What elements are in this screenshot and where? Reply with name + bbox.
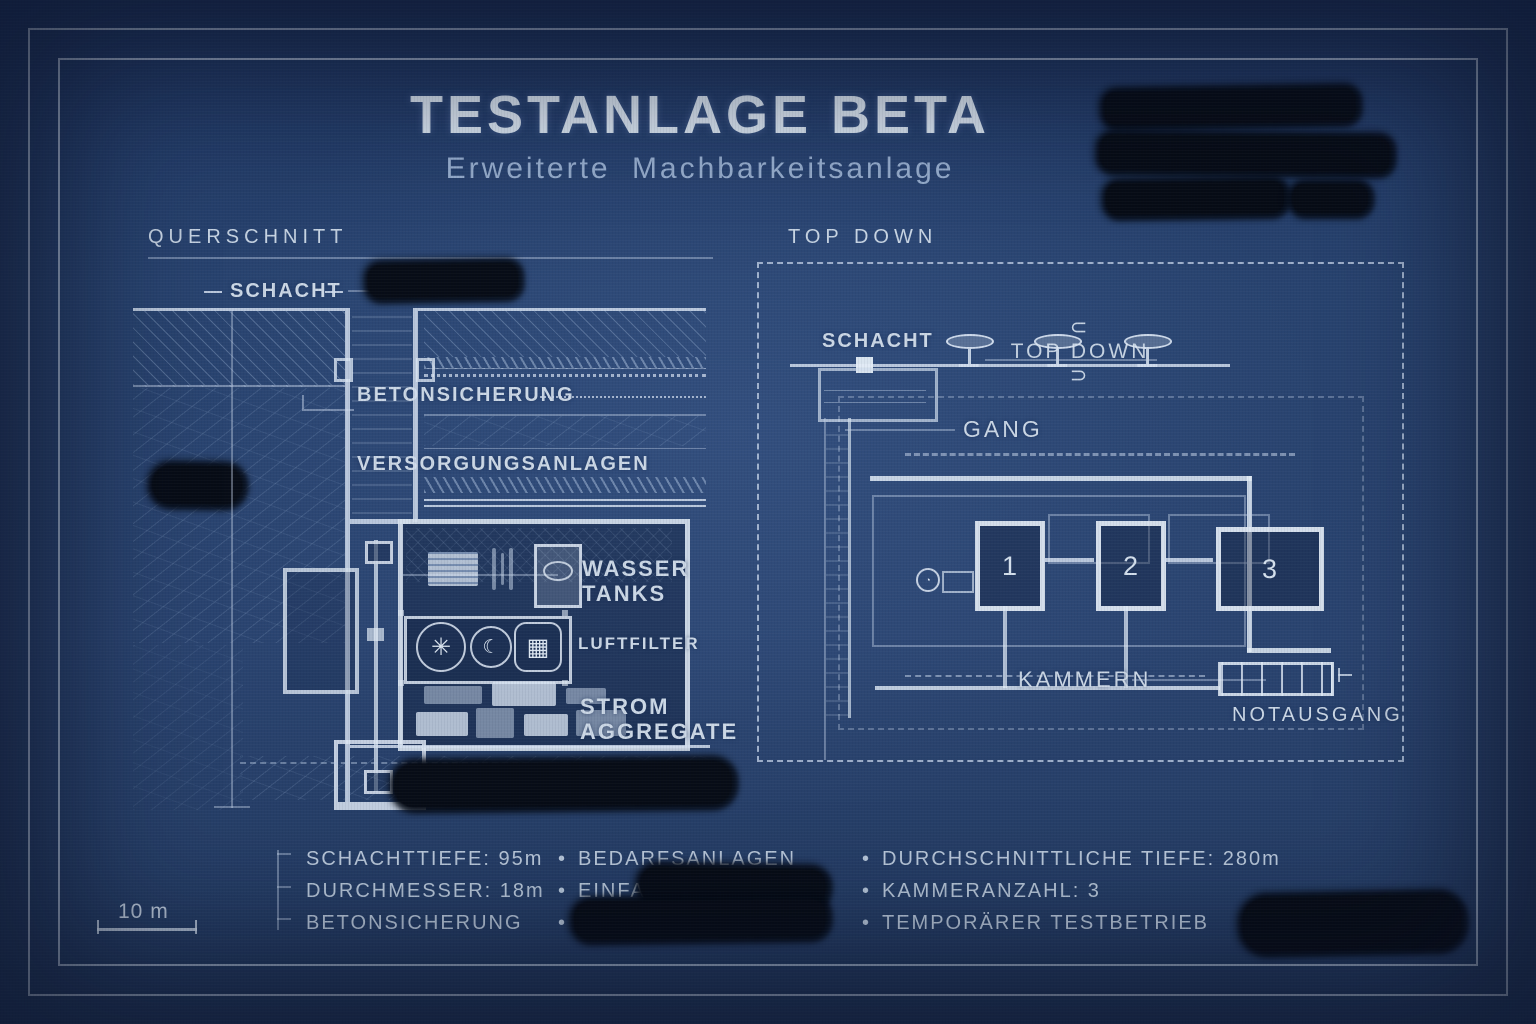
crescent-glyph: ☾ <box>482 636 499 659</box>
water-tank-icon <box>534 544 582 608</box>
betonsicherung-dotline <box>424 374 706 377</box>
chamber-1: 1 <box>975 521 1045 611</box>
redaction-mark <box>1100 134 1390 172</box>
exit-arrow-icon <box>1338 668 1340 682</box>
legend-item: •DURCHSCHNITTLICHE TIEFE: 280m <box>862 848 1281 871</box>
legend-text: KAMMERANZAHL: 3 <box>882 880 1101 902</box>
shaft-collar-step <box>334 358 353 382</box>
scale-bar-tick <box>97 920 99 934</box>
scale-bar-label: 10 m <box>118 900 169 924</box>
bullet-icon: • <box>862 848 882 871</box>
label-luftfilter: LUFTFILTER <box>578 634 700 654</box>
legend-bracket-tick <box>277 918 291 920</box>
gauge-icon: ◔ <box>916 568 940 592</box>
compass-bracket-right-icon: ⊃ <box>1070 364 1091 387</box>
generator-machine <box>476 708 514 738</box>
panel-corner-marker <box>398 610 404 616</box>
facility-floor-line <box>350 745 710 748</box>
chamber-connector <box>1042 558 1094 562</box>
stratum-line <box>424 505 706 507</box>
section-heading-topdown: TOP DOWN <box>788 226 937 249</box>
scale-bar-tick <box>195 920 197 934</box>
shaft-ladder <box>352 316 412 518</box>
corridor-wall <box>848 418 851 718</box>
legend-item: •TEMPORÄRER TESTBETRIEB <box>862 912 1209 935</box>
label-wasser-tanks: WASSER TANKS <box>582 556 689 607</box>
legend-bracket-tick <box>277 853 291 855</box>
notausgang-ladder <box>1218 662 1334 696</box>
rock-stratum <box>424 477 706 493</box>
vent-icon <box>946 334 992 367</box>
exit-corridor <box>1247 648 1331 653</box>
corridor-dash-line <box>905 453 1295 456</box>
legend-item: BETONSICHERUNG <box>306 912 523 935</box>
depth-measure-tick <box>214 806 250 808</box>
collar-detail-line <box>824 390 926 391</box>
filter-unit-icon: ▦ <box>514 622 562 672</box>
collar-detail-line <box>824 402 926 403</box>
redaction-mark <box>574 898 827 940</box>
chamber-3: 3 <box>1216 527 1324 611</box>
label-schacht-topdown: SCHACHT <box>822 330 934 353</box>
legend-item: SCHACHTTIEFE: 95m <box>306 848 543 871</box>
bullet-icon: • <box>558 848 578 871</box>
legend-item: DURCHMESSER: 18m <box>306 880 545 903</box>
legend-bracket-tick <box>277 886 291 888</box>
rock-stratum <box>424 311 706 357</box>
blueprint-canvas: TESTANLAGE BETA Erweiterte Machbarkeitsa… <box>0 0 1536 1024</box>
vent-icon <box>1124 334 1170 367</box>
rock-stratum <box>424 416 706 446</box>
crescent-icon: ☾ <box>470 626 512 668</box>
main-corridor <box>870 476 1252 481</box>
chamber-connector <box>1163 558 1213 562</box>
fan-icon: ✳ <box>416 622 466 672</box>
callout-dash <box>204 291 222 293</box>
legend-item: •KAMMERANZAHL: 3 <box>862 880 1101 903</box>
exit-arrow-icon <box>1338 674 1352 676</box>
bullet-icon: • <box>558 880 578 903</box>
section-heading-querschnitt: QUERSCHNITT <box>148 226 347 249</box>
pump-machine <box>428 552 478 586</box>
monitor-icon <box>942 571 974 593</box>
vent-icon <box>1034 334 1080 367</box>
generator-machine <box>492 682 556 706</box>
gang-leader-line <box>845 429 955 431</box>
generator-machine <box>416 712 468 736</box>
label-gang: GANG <box>963 416 1043 442</box>
vent-manifold-line <box>985 359 1157 361</box>
generator-machine <box>424 686 482 704</box>
pipe-flange <box>501 553 504 585</box>
panel-corner-marker <box>562 680 568 686</box>
callout-dash <box>325 291 343 293</box>
label-notausgang: NOTAUSGANG <box>1232 704 1403 727</box>
filter-unit-glyph: ▦ <box>527 633 550 662</box>
scale-bar <box>97 928 197 931</box>
shaft-wall-left <box>345 308 350 802</box>
rock-texture <box>133 645 243 810</box>
section-divider <box>148 257 713 259</box>
chamber-2: 2 <box>1096 521 1166 611</box>
panel-corner-marker <box>398 680 404 686</box>
redaction-mark <box>1104 88 1357 125</box>
shaft-collar-step <box>416 358 435 382</box>
redaction-mark <box>1106 181 1284 215</box>
corridor-ladder-texture <box>826 420 848 716</box>
depth-measure-line <box>231 310 233 808</box>
redaction-mark <box>368 263 519 299</box>
redaction-mark <box>152 465 243 505</box>
shaft-wall-right <box>413 308 418 522</box>
legend-text: TEMPORÄRER TESTBETRIEB <box>882 912 1209 934</box>
stratum-line <box>424 499 706 501</box>
legend-text: DURCHSCHNITTLICHE TIEFE: 280m <box>882 848 1281 870</box>
redaction-mark <box>1292 184 1368 213</box>
redaction-mark <box>1241 894 1462 953</box>
bullet-icon: • <box>862 912 882 935</box>
betonsicherung-dotline <box>540 396 706 398</box>
rock-stratum <box>424 357 706 369</box>
elevator-counterweight <box>367 628 384 641</box>
fan-glyph: ✳ <box>431 633 451 662</box>
pipe-flange <box>509 548 513 590</box>
rock-stratum <box>133 311 345 387</box>
bullet-icon: • <box>862 880 882 903</box>
redaction-mark <box>394 760 732 808</box>
side-chamber <box>283 568 359 694</box>
panel-corner-marker <box>562 610 568 616</box>
label-strom-aggregate: STROM AGGREGATE <box>580 694 738 745</box>
generator-machine <box>524 714 568 736</box>
pipe-flange <box>492 548 496 590</box>
stratum-line <box>424 448 706 449</box>
elevator-cab <box>365 541 393 564</box>
shaft-collar-room <box>818 368 938 422</box>
